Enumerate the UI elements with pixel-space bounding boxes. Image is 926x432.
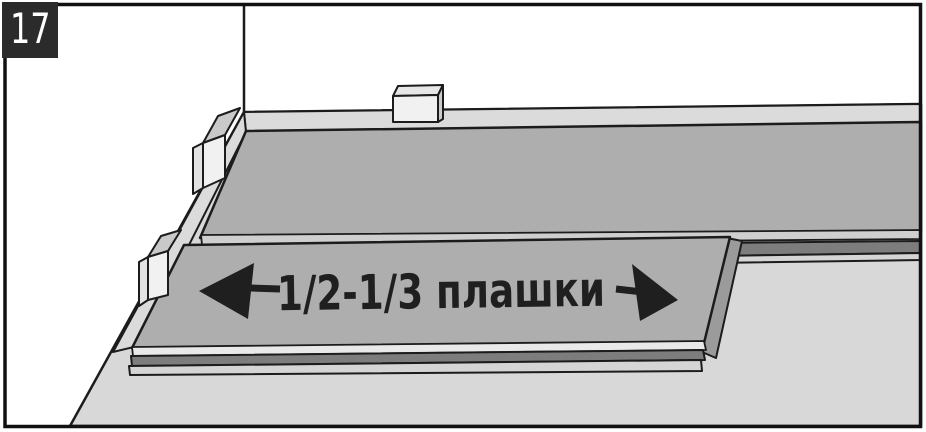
spacer-block-left-upper-frontface	[203, 135, 225, 188]
offset-label: 1/2-1/3 плашки	[277, 262, 606, 323]
step-badge: 17	[2, 2, 58, 58]
figure-step-17-illustration: 1/2-1/3 плашки 17	[0, 0, 926, 432]
installation-diagram: 1/2-1/3 плашки	[0, 0, 926, 432]
offset-right-arrow-tail	[616, 289, 643, 292]
plank-row1-surface	[200, 122, 921, 238]
spacer-block-left-upper-sideface	[193, 143, 203, 194]
step-number: 17	[10, 1, 51, 57]
spacer-block-top-frontface	[393, 95, 438, 122]
spacer-block-left-lower-sideface	[139, 257, 148, 306]
offset-left-arrow-tail	[251, 288, 280, 289]
spacer-block-left-lower-frontface	[148, 251, 168, 300]
